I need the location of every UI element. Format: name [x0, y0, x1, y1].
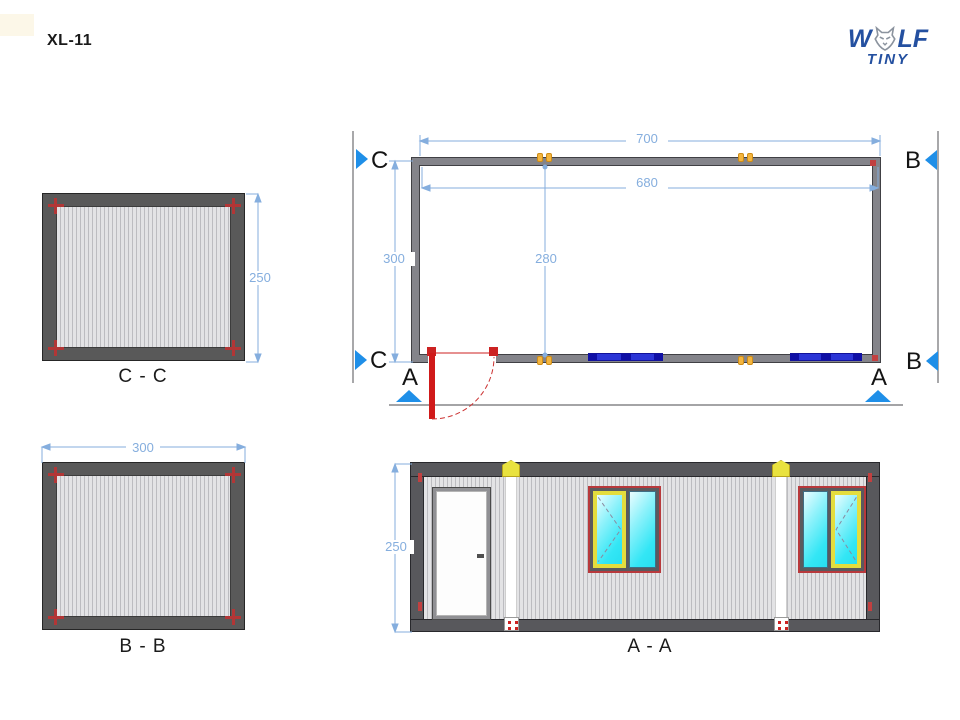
- aa-window-1: [588, 486, 661, 573]
- dim-aa-height-label: 250: [378, 540, 414, 554]
- dim-700-label: 700: [626, 132, 668, 146]
- aa-window-2-fixed-pane: [803, 491, 828, 568]
- logo-word-end: LF: [898, 26, 929, 52]
- aa-top-rail: [410, 462, 880, 477]
- plan-annotations: [340, 125, 952, 427]
- corner-mark: [225, 609, 241, 625]
- view-bb-panel: [56, 475, 231, 617]
- module-connector-dot: [537, 356, 543, 365]
- aa-window-1-opening-sash: [593, 491, 626, 568]
- plan-window-1: [588, 353, 663, 361]
- view-cc-body: [42, 193, 245, 361]
- view-aa-body: [410, 462, 880, 632]
- module-connector-dot: [738, 356, 744, 365]
- view-cc-panel: [56, 206, 231, 348]
- aa-corner-mark: [418, 473, 422, 482]
- plan-window-2: [790, 353, 862, 361]
- section-arrow-a-left-icon: [396, 390, 422, 402]
- logo-word: W LF: [833, 26, 943, 52]
- aa-bottom-rail: [410, 619, 880, 632]
- section-label-a-left: A: [402, 364, 418, 392]
- aa-base-connector: [774, 617, 789, 631]
- section-label-c-bottom: C: [370, 347, 387, 375]
- logo-subtitle: TINY: [833, 52, 943, 67]
- view-bb-caption: B - B: [90, 636, 196, 658]
- section-arrow-b-top-icon: [925, 150, 937, 170]
- aa-corner-mark: [418, 602, 422, 611]
- aa-door: [432, 487, 491, 620]
- plan-corner-mark: [872, 355, 878, 361]
- module-connector-dot: [546, 356, 552, 365]
- dim-300-label: 300: [373, 252, 415, 266]
- section-label-c-top: C: [371, 147, 388, 175]
- brand-logo: W LF TINY: [833, 26, 943, 67]
- corner-mark: [48, 198, 64, 214]
- dim-280-label: 280: [525, 252, 567, 266]
- plan-door: [427, 347, 498, 419]
- sash-opening-lines: [835, 495, 858, 564]
- view-cc-caption: C - C: [90, 366, 196, 388]
- corner-mark: [225, 340, 241, 356]
- aa-base-connector: [504, 617, 519, 631]
- section-arrow-c-top-icon: [356, 149, 368, 169]
- section-cut-lines: [353, 131, 938, 405]
- corner-mark: [225, 467, 241, 483]
- section-arrow-a-right-icon: [865, 390, 891, 402]
- aa-right-column: [866, 476, 880, 620]
- corner-mark: [48, 467, 64, 483]
- module-connector-dot: [747, 153, 753, 162]
- corner-mark: [48, 609, 64, 625]
- aa-corner-mark: [868, 602, 872, 611]
- aa-window-2: [798, 486, 866, 573]
- aa-window-1-fixed-pane: [629, 491, 656, 568]
- wolf-head-icon: [872, 26, 898, 52]
- paper-corner-smudge: [0, 14, 34, 36]
- aa-window-2-opening-sash: [831, 491, 862, 568]
- section-label-b-bottom: B: [906, 348, 922, 376]
- aa-door-handle: [477, 554, 484, 558]
- section-label-b-top: B: [905, 147, 921, 175]
- dim-bb-width-label: 300: [126, 441, 160, 455]
- section-arrow-c-bottom-icon: [355, 350, 367, 370]
- logo-word-start: W: [848, 26, 872, 52]
- module-connector-dot: [537, 153, 543, 162]
- dim-cc-height-label: 250: [245, 271, 275, 285]
- dim-680-label: 680: [626, 176, 668, 190]
- door-swing-arc: [432, 357, 494, 419]
- corner-mark: [48, 340, 64, 356]
- drawing-sheet: XL-11 W LF TINY 250 C - C: [0, 0, 960, 720]
- section-label-a-right: A: [871, 364, 887, 392]
- module-connector-dot: [546, 153, 552, 162]
- section-arrow-b-bottom-icon: [926, 351, 938, 371]
- model-title: XL-11: [47, 32, 92, 50]
- sash-opening-lines: [597, 495, 622, 564]
- aa-module-joint: [775, 477, 787, 619]
- aa-module-joint: [505, 477, 517, 619]
- view-bb-body: [42, 462, 245, 630]
- module-connector-dot: [738, 153, 744, 162]
- module-connector-dot: [747, 356, 753, 365]
- aa-corner-mark: [868, 473, 872, 482]
- plan-corner-mark: [870, 160, 876, 166]
- door-leaf: [429, 353, 435, 419]
- view-aa-caption: A - A: [597, 636, 703, 658]
- corner-mark: [225, 198, 241, 214]
